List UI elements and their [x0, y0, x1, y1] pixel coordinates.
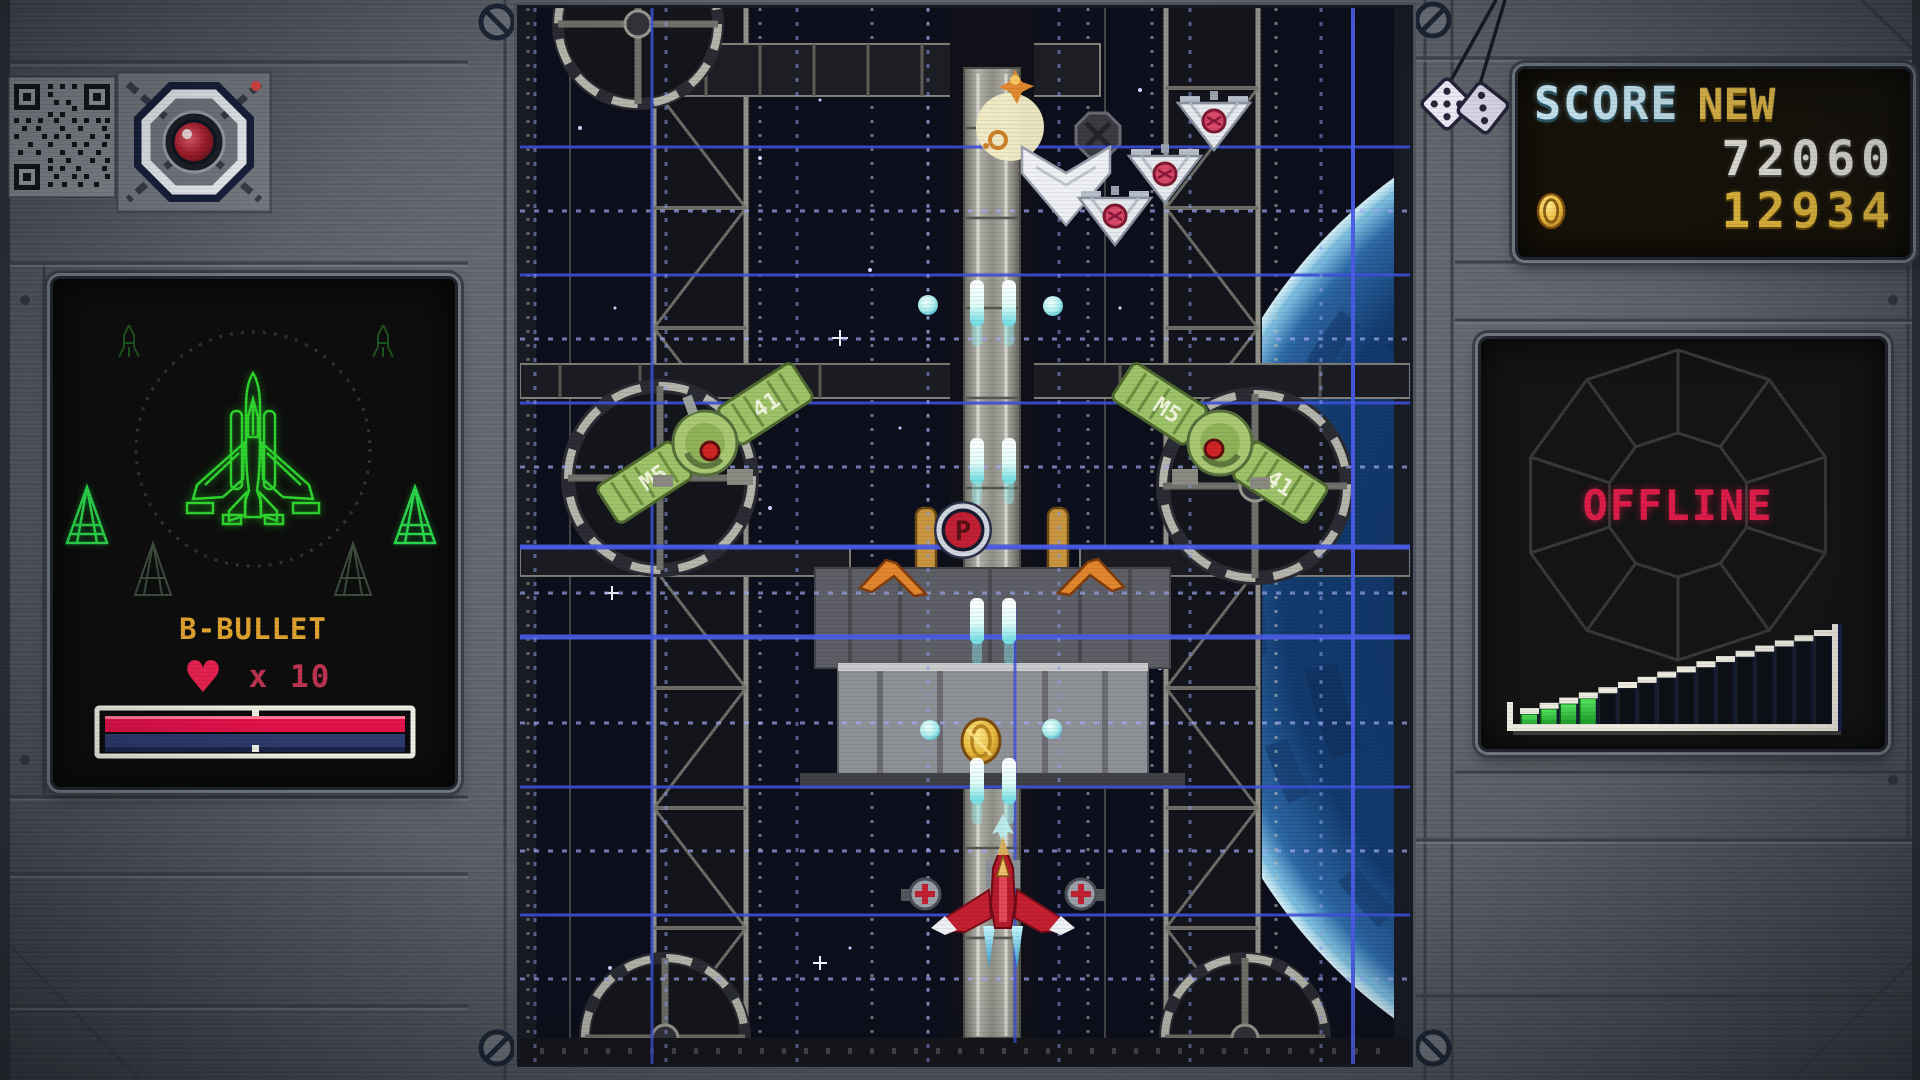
playfield[interactable]: M5 41 M5 — [520, 8, 1410, 1064]
meter-bar-cap — [1598, 687, 1617, 693]
offline-status-text: OFFLINE — [1582, 481, 1773, 530]
meter-bar-cap — [1559, 698, 1578, 704]
pylon-icon — [67, 487, 435, 543]
new-badge: NEW — [1697, 84, 1775, 127]
qr-code-icon — [8, 76, 116, 198]
status-panel: OFFLINE — [1478, 336, 1888, 752]
svg-text:P: P — [955, 516, 971, 547]
heart-icon: ♥ — [183, 652, 222, 703]
meter-bar-cap — [1657, 672, 1676, 678]
meter-bar-cap — [1520, 708, 1539, 714]
meter-bar-cap — [1755, 646, 1774, 652]
camera-lens-icon — [116, 70, 272, 214]
corner-screw — [481, 1032, 513, 1064]
coin-pickup — [962, 719, 1000, 763]
meter-bar — [1697, 667, 1714, 728]
meter-bar-cap — [1716, 656, 1735, 662]
weapon-name: B-BULLET — [179, 612, 327, 646]
station-gear — [1076, 113, 1120, 157]
meter-bar-cap — [1736, 651, 1755, 657]
rocket-icon — [119, 325, 393, 357]
meter-bar — [1599, 693, 1616, 728]
meter-bar — [1737, 657, 1754, 728]
meter-bar — [1795, 641, 1812, 728]
meter-bar-cap — [1638, 677, 1657, 683]
coin-count: 12934 — [1570, 187, 1896, 235]
score-label: SCORE — [1534, 81, 1679, 126]
corner-screw — [1417, 1032, 1449, 1064]
game-screen: M5 41 M5 — [0, 0, 1920, 1080]
meter-bar — [1580, 698, 1597, 728]
meter-baseline — [1513, 724, 1841, 731]
pylon-icon-dim — [135, 543, 371, 595]
powerup-p: P — [936, 503, 990, 557]
radar-ring — [136, 332, 370, 566]
coin-icon — [1536, 191, 1570, 231]
meter-bar — [1658, 678, 1675, 728]
meter-bar-cap — [1696, 661, 1715, 667]
meter-bar-cap — [1814, 630, 1833, 636]
corner-screw — [481, 6, 513, 38]
ship-status-panel: B-BULLET ♥ x 10 — [50, 276, 458, 790]
meter-bar — [1639, 683, 1656, 728]
meter-bar-cap — [1540, 703, 1559, 709]
meter-bar — [1756, 652, 1773, 728]
meter-bar — [1717, 662, 1734, 728]
meter-bar — [1678, 672, 1695, 728]
meter-bar — [1619, 688, 1636, 728]
meter-bar-cap — [1775, 640, 1794, 646]
meter-bar-cap — [1794, 635, 1813, 641]
meter-bar-cap — [1579, 692, 1598, 698]
meter-bar-cap — [1618, 682, 1637, 688]
score-value: 72060 — [1518, 135, 1910, 183]
ship-wireframe — [187, 373, 319, 524]
meter-bar — [1776, 646, 1793, 728]
lives-count: x 10 — [249, 659, 332, 695]
score-panel: SCORE NEW 72060 12934 — [1515, 66, 1913, 260]
health-bar — [97, 708, 413, 756]
meter-bar-cap — [1677, 666, 1696, 672]
meter-bar — [1815, 636, 1832, 728]
